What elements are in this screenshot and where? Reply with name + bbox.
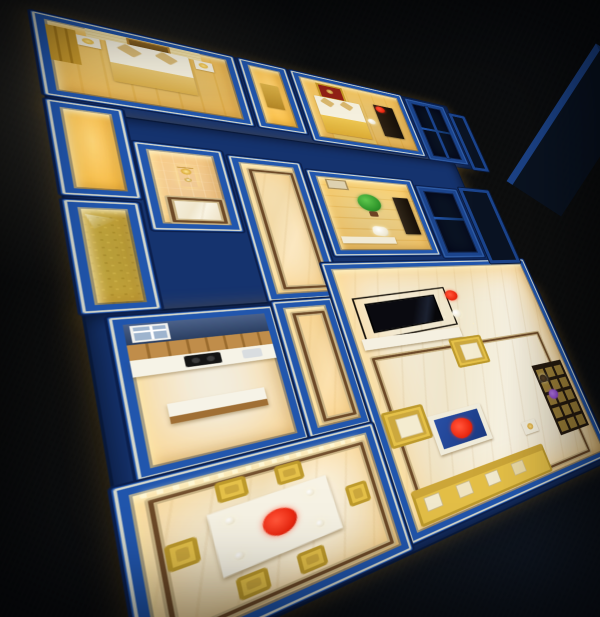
chair: [372, 225, 389, 236]
low-cabinet: [341, 236, 397, 243]
scale-model-photo: [0, 0, 600, 617]
bath-floor: [167, 197, 228, 224]
topiary-plant: [355, 193, 384, 212]
small-wall-frame: [325, 179, 350, 191]
balcony-sill: [433, 217, 464, 221]
frame-medallion: [326, 89, 334, 95]
pillow: [340, 101, 354, 111]
gold-decor: [526, 422, 534, 430]
island-counter: [167, 387, 269, 424]
place-setting: [233, 550, 245, 562]
pillow: [116, 44, 142, 58]
place-setting: [315, 518, 325, 528]
detached-wall-piece: [507, 44, 600, 217]
stool: [367, 118, 377, 125]
chandelier: [176, 165, 198, 187]
bed: [314, 95, 373, 139]
desk: [392, 197, 421, 234]
tv-screen: [364, 294, 444, 333]
sofa-pillow: [484, 469, 501, 486]
blanket: [110, 62, 198, 96]
apartment-model: [30, 10, 600, 617]
armchair-cushion: [395, 414, 424, 439]
sofa-pillow: [455, 480, 474, 499]
place-setting: [224, 515, 236, 526]
pillow: [154, 52, 178, 65]
place-setting: [305, 488, 315, 498]
burner: [206, 355, 215, 361]
burner: [191, 357, 200, 364]
sofa-pillow: [511, 460, 527, 476]
pillow: [320, 97, 334, 107]
flower-centerpiece: [260, 503, 301, 540]
plant-pot: [369, 211, 379, 217]
carpet-sheen: [85, 214, 121, 230]
sofa-pillow: [423, 492, 443, 512]
wardrobe: [45, 24, 82, 65]
armchair-cushion: [460, 342, 483, 360]
dresser: [260, 83, 285, 110]
